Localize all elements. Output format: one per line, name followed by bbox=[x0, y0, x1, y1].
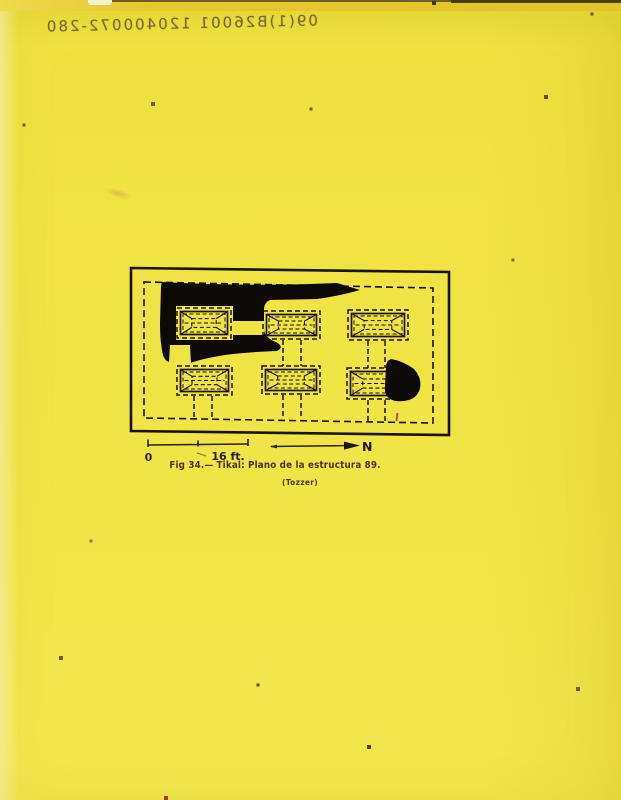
north-arrow bbox=[270, 442, 360, 450]
scan-edge-line-right bbox=[451, 0, 621, 3]
platform-top-middle bbox=[263, 311, 320, 339]
paper-specks bbox=[0, 0, 2, 2]
platform-top-right bbox=[348, 310, 408, 340]
stairway-stem bbox=[368, 400, 385, 422]
site-plan-figure bbox=[129, 266, 452, 437]
platform-bottom-left bbox=[177, 366, 232, 395]
figure-caption: Fig 34.— Tikal: Plano de la estructura 8… bbox=[123, 460, 427, 471]
figure-caption-title: Tikal: Plano de la estructura 89. bbox=[217, 460, 381, 471]
north-label: N bbox=[362, 439, 372, 454]
scan-edge-notch bbox=[88, 0, 112, 5]
figure-credit: (Tozzer) bbox=[150, 478, 450, 487]
stairway-stem bbox=[283, 340, 301, 366]
ink-blot-small bbox=[385, 359, 421, 401]
stairway-stem bbox=[283, 395, 301, 419]
platform-top-left bbox=[177, 308, 231, 338]
stairway-stem bbox=[368, 341, 385, 368]
platform-bottom-middle bbox=[262, 366, 320, 394]
ink-blot-large bbox=[160, 282, 360, 363]
scanned-page: { "page": { "paper_color": "#f0e446", "t… bbox=[0, 0, 621, 800]
stairway-stem bbox=[194, 396, 212, 418]
figure-caption-label: Fig 34.— bbox=[169, 460, 213, 471]
